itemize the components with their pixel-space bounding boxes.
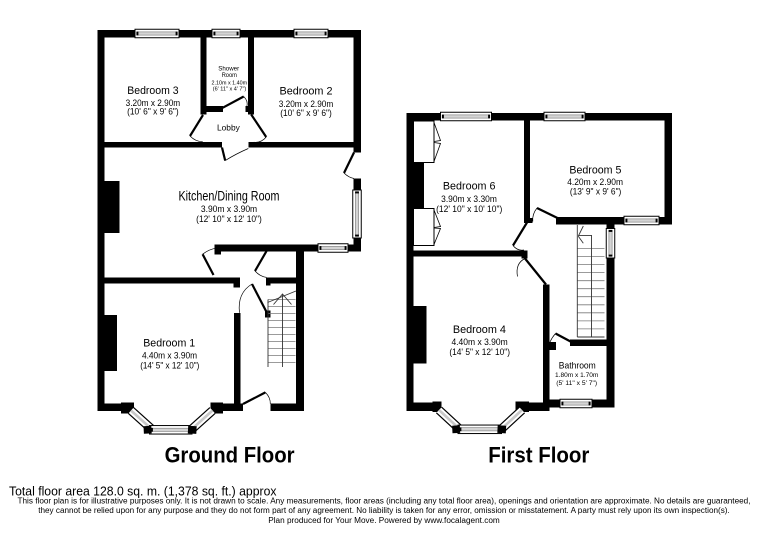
svg-text:1.80m x 1.70m: 1.80m x 1.70m [555, 372, 599, 379]
svg-text:Lobby: Lobby [217, 123, 240, 133]
svg-text:Ground Floor: Ground Floor [165, 443, 295, 468]
svg-text:(10' 6" x 9' 6"): (10' 6" x 9' 6") [280, 108, 332, 118]
svg-text:(14' 5" x 12' 10"): (14' 5" x 12' 10") [140, 360, 199, 370]
svg-text:Kitchen/Dining Room: Kitchen/Dining Room [179, 189, 280, 204]
svg-text:4.40m x 3.90m: 4.40m x 3.90m [142, 351, 197, 361]
svg-text:(12' 10" x 12' 10"): (12' 10" x 12' 10") [196, 214, 262, 224]
svg-text:Bedroom 4: Bedroom 4 [453, 324, 506, 336]
svg-text:3.90m x 3.90m: 3.90m x 3.90m [201, 204, 258, 214]
svg-text:4.40m x 3.90m: 4.40m x 3.90m [451, 337, 508, 347]
svg-text:Bedroom 1: Bedroom 1 [143, 337, 195, 349]
svg-text:(13' 9" x 9' 6"): (13' 9" x 9' 6") [570, 187, 622, 197]
svg-text:Plan produced for Your Move. P: Plan produced for Your Move. Powered by … [268, 516, 500, 525]
svg-text:Bedroom 6: Bedroom 6 [443, 181, 496, 193]
svg-text:(10' 6" x 9' 6"): (10' 6" x 9' 6") [127, 107, 179, 117]
svg-text:(12' 10" x 10' 10"): (12' 10" x 10' 10") [436, 204, 502, 214]
svg-text:Bedroom 3: Bedroom 3 [127, 85, 178, 97]
svg-text:This floor plan is for illustr: This floor plan is for illustrative purp… [18, 496, 751, 505]
svg-text:Room: Room [222, 72, 237, 79]
svg-text:(6' 11" x 4' 7"): (6' 11" x 4' 7") [213, 87, 247, 93]
svg-text:(5' 11" x 5' 7"): (5' 11" x 5' 7") [556, 380, 597, 387]
svg-text:Bedroom 5: Bedroom 5 [569, 165, 621, 177]
svg-text:3.90m x 3.30m: 3.90m x 3.30m [441, 194, 497, 204]
svg-text:Bathroom: Bathroom [559, 361, 596, 371]
svg-text:Bedroom 2: Bedroom 2 [280, 85, 333, 97]
svg-text:(14' 5" x 12' 10"): (14' 5" x 12' 10") [449, 347, 510, 357]
svg-text:First Floor: First Floor [488, 443, 589, 468]
svg-text:they cannot be relied upon for: they cannot be relied upon for any purpo… [38, 506, 729, 515]
